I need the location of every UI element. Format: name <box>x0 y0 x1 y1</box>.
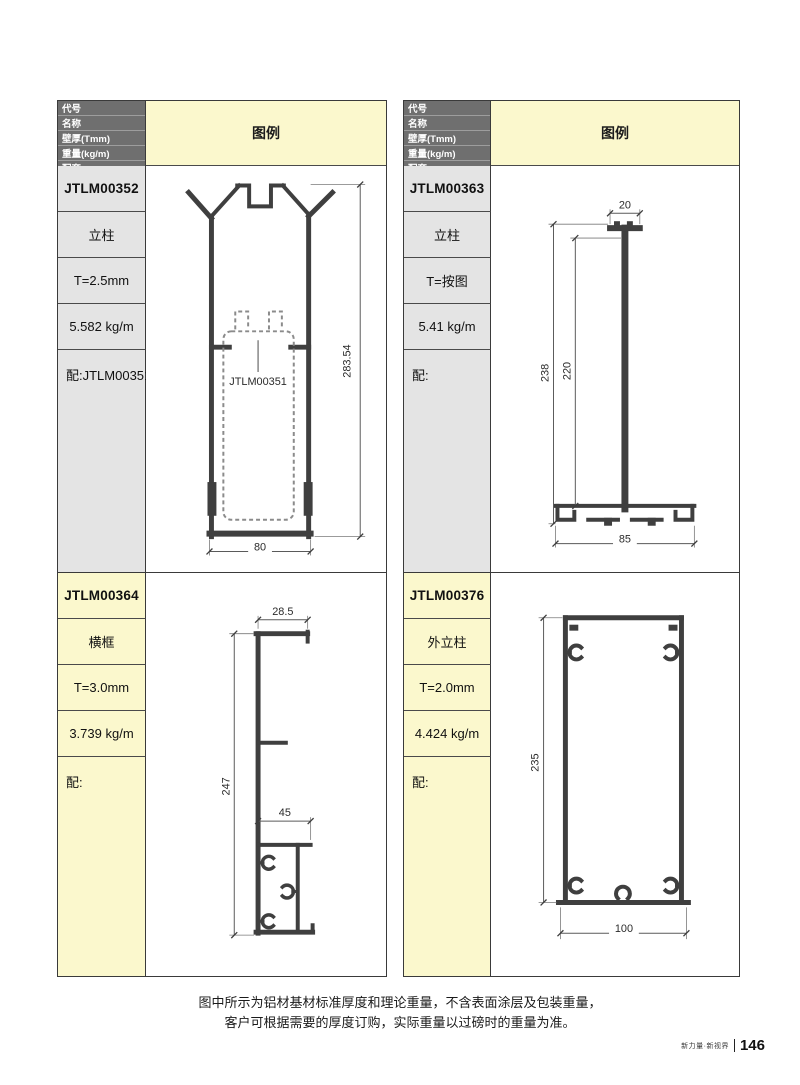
dimension-label: 20 <box>619 199 631 211</box>
spec-header-thickness: 壁厚(Tmm) <box>404 131 490 146</box>
match-cell: 配: <box>404 350 491 572</box>
spec-header-weight: 重量(kg/m) <box>58 146 145 161</box>
thickness-cell: T=3.0mm <box>58 665 146 711</box>
dimension-label: 100 <box>615 923 633 935</box>
dimension-label: 247 <box>220 777 232 795</box>
spec-header-code: 代号 <box>404 101 490 116</box>
spec-header-weight: 重量(kg/m) <box>404 146 490 161</box>
match-cell: 配: <box>404 757 491 976</box>
profile-card-1: 代号 名称 壁厚(Tmm) 重量(kg/m) 配套 图例 JTLM00352 立… <box>57 100 387 573</box>
match-cell: 配: <box>58 757 146 976</box>
dimension-label: 235 <box>530 753 542 771</box>
weight-cell: 3.739 kg/m <box>58 711 146 757</box>
left-column: 代号 名称 壁厚(Tmm) 重量(kg/m) 配套 图例 JTLM00352 立… <box>57 100 387 977</box>
name-cell: 立柱 <box>58 212 146 258</box>
weight-cell: 4.424 kg/m <box>404 711 491 757</box>
dimension-label: 283.54 <box>341 344 353 377</box>
code-cell: JTLM00364 <box>58 573 146 619</box>
profile-card-4: JTLM00376 外立柱 T=2.0mm 4.424 kg/m 配: <box>403 573 740 977</box>
spec-header-thickness: 壁厚(Tmm) <box>58 131 145 146</box>
dimension-label: 45 <box>279 807 291 819</box>
inner-profile-label: JTLM00351 <box>229 376 287 388</box>
profile-drawing-jtlm00363: 20 238 220 <box>491 166 739 572</box>
brand-tagline: 新力量·新视界 <box>681 1041 729 1051</box>
code-cell: JTLM00376 <box>404 573 491 619</box>
weight-cell: 5.582 kg/m <box>58 304 146 350</box>
dimension-label: 28.5 <box>272 606 293 618</box>
name-cell: 外立柱 <box>404 619 491 665</box>
name-cell: 立柱 <box>404 212 491 258</box>
profile-drawing-jtlm00376: 235 100 <box>491 573 739 976</box>
page-number: 146 <box>740 1037 765 1054</box>
spec-header-name: 名称 <box>404 116 490 131</box>
match-cell: 配:JTLM00351 <box>58 350 146 572</box>
legend-header: 图例 <box>491 101 739 166</box>
name-cell: 横框 <box>58 619 146 665</box>
weight-cell: 5.41 kg/m <box>404 304 491 350</box>
right-column: 代号 名称 壁厚(Tmm) 重量(kg/m) 配套 图例 JTLM00363 立… <box>403 100 740 977</box>
thickness-cell: T=2.5mm <box>58 258 146 304</box>
profile-card-2: 代号 名称 壁厚(Tmm) 重量(kg/m) 配套 图例 JTLM00363 立… <box>403 100 740 573</box>
legend-header: 图例 <box>146 101 386 166</box>
spec-header-name: 名称 <box>58 116 145 131</box>
page-footer: 新力量·新视界 146 <box>681 1037 765 1054</box>
dimension-label: 220 <box>561 362 573 380</box>
footer-divider <box>734 1039 735 1052</box>
footnote-line-1: 图中所示为铝材基材标准厚度和理论重量，不含表面涂层及包装重量， <box>0 993 800 1013</box>
dimension-label: 80 <box>254 541 266 553</box>
footnote-line-2: 客户可根据需要的厚度订购，实际重量以过磅时的重量为准。 <box>0 1013 800 1033</box>
dimension-label: 238 <box>540 364 552 382</box>
footnote: 图中所示为铝材基材标准厚度和理论重量，不含表面涂层及包装重量， 客户可根据需要的… <box>0 993 800 1033</box>
thickness-cell: T=按图 <box>404 258 491 304</box>
profile-drawing-jtlm00364: 28.5 247 45 <box>146 573 386 976</box>
spec-header-code: 代号 <box>58 101 145 116</box>
profile-card-3: JTLM00364 横框 T=3.0mm 3.739 kg/m 配: <box>57 573 387 977</box>
code-cell: JTLM00363 <box>404 166 491 212</box>
spec-header-column: 代号 名称 壁厚(Tmm) 重量(kg/m) 配套 <box>404 101 491 166</box>
code-cell: JTLM00352 <box>58 166 146 212</box>
spec-header-column: 代号 名称 壁厚(Tmm) 重量(kg/m) 配套 <box>58 101 146 166</box>
dimension-label: 85 <box>619 534 631 546</box>
thickness-cell: T=2.0mm <box>404 665 491 711</box>
profile-drawing-jtlm00352: JTLM00351 283.54 80 <box>146 166 386 572</box>
catalog-page: 代号 名称 壁厚(Tmm) 重量(kg/m) 配套 图例 JTLM00352 立… <box>0 0 800 1085</box>
